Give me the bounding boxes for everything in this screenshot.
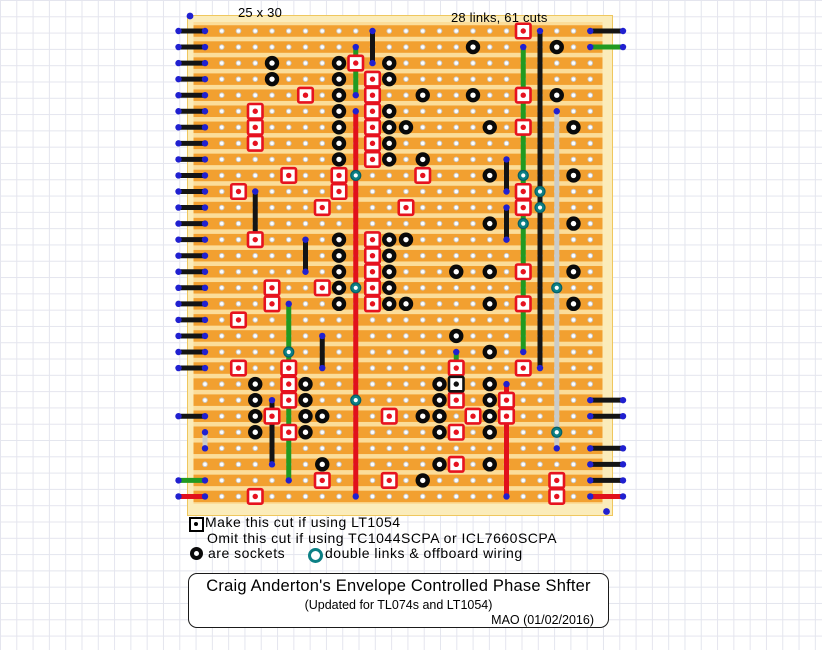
board-size-label: 25 x 30: [238, 5, 282, 20]
legend-double-links-text: double links & offboard wiring: [325, 545, 523, 561]
socket-icon: [190, 547, 203, 560]
cut-marker-icon: [189, 517, 204, 532]
double-link-icon: [308, 548, 323, 563]
legend-make-cut-text: Make this cut if using LT1054: [205, 514, 401, 530]
legend-omit-cut-text: Omit this cut if using TC1044SCPA or ICL…: [207, 530, 557, 546]
project-author-date: MAO (01/02/2016): [189, 613, 608, 627]
legend-sockets-text: are sockets: [208, 545, 285, 561]
title-box: Craig Anderton's Envelope Controlled Pha…: [188, 573, 609, 628]
links-cuts-label: 28 links, 61 cuts: [451, 10, 548, 25]
diylc-stripboard-layout: 25 x 30 28 links, 61 cuts Make this cut …: [0, 0, 822, 650]
project-subtitle: (Updated for TL074s and LT1054): [189, 598, 608, 612]
project-title: Craig Anderton's Envelope Controlled Pha…: [189, 577, 608, 596]
